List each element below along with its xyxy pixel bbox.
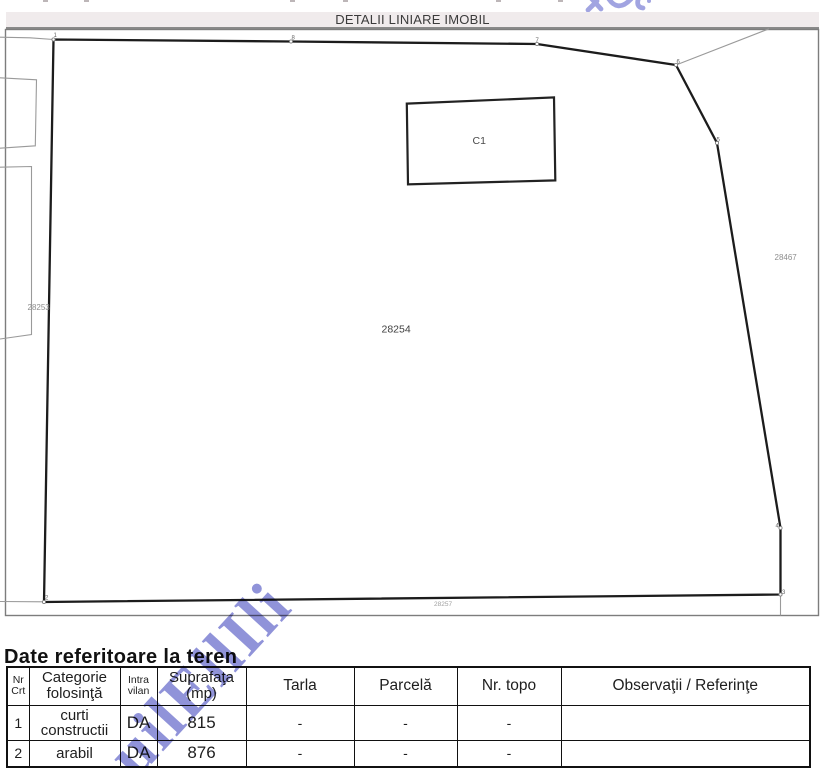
svg-text:5: 5	[717, 138, 721, 144]
svg-text:1: 1	[54, 33, 58, 39]
svg-text:C1: C1	[473, 135, 487, 147]
svg-text:7: 7	[536, 38, 540, 44]
svg-text:2: 2	[45, 596, 49, 602]
svg-text:28254: 28254	[382, 324, 411, 336]
svg-text:28253: 28253	[28, 303, 51, 312]
svg-text:3: 3	[782, 590, 786, 596]
svg-text:28467: 28467	[775, 253, 798, 262]
svg-text:28257: 28257	[434, 601, 452, 608]
svg-text:6: 6	[677, 60, 681, 66]
